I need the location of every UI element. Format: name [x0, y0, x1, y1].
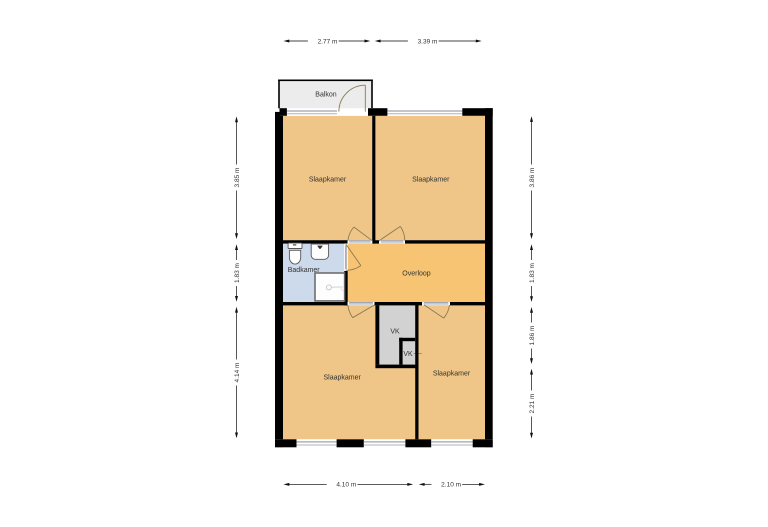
- svg-text:3.86 m: 3.86 m: [529, 168, 536, 188]
- svg-text:3.85 m: 3.85 m: [234, 168, 241, 188]
- svg-text:4.10 m: 4.10 m: [336, 482, 356, 489]
- svg-text:Slaapkamer: Slaapkamer: [433, 370, 471, 377]
- svg-text:2.21 m: 2.21 m: [529, 394, 536, 414]
- svg-text:VK: VK: [390, 329, 400, 336]
- svg-text:Balkon: Balkon: [315, 92, 337, 99]
- svg-text:Slaapkamer: Slaapkamer: [412, 176, 450, 183]
- svg-text:1.83 m: 1.83 m: [529, 263, 536, 283]
- svg-text:3.39 m: 3.39 m: [418, 38, 438, 45]
- svg-text:4.14 m: 4.14 m: [234, 363, 241, 383]
- svg-text:1.86 m: 1.86 m: [529, 326, 536, 346]
- svg-text:VK: VK: [403, 351, 413, 358]
- svg-text:1.83 m: 1.83 m: [234, 263, 241, 283]
- svg-text:Overloop: Overloop: [402, 270, 431, 277]
- svg-text:Slaapkamer: Slaapkamer: [309, 176, 347, 183]
- svg-text:2.10 m: 2.10 m: [441, 482, 461, 489]
- svg-text:2.77 m: 2.77 m: [318, 38, 338, 45]
- svg-text:Slaapkamer: Slaapkamer: [324, 375, 362, 382]
